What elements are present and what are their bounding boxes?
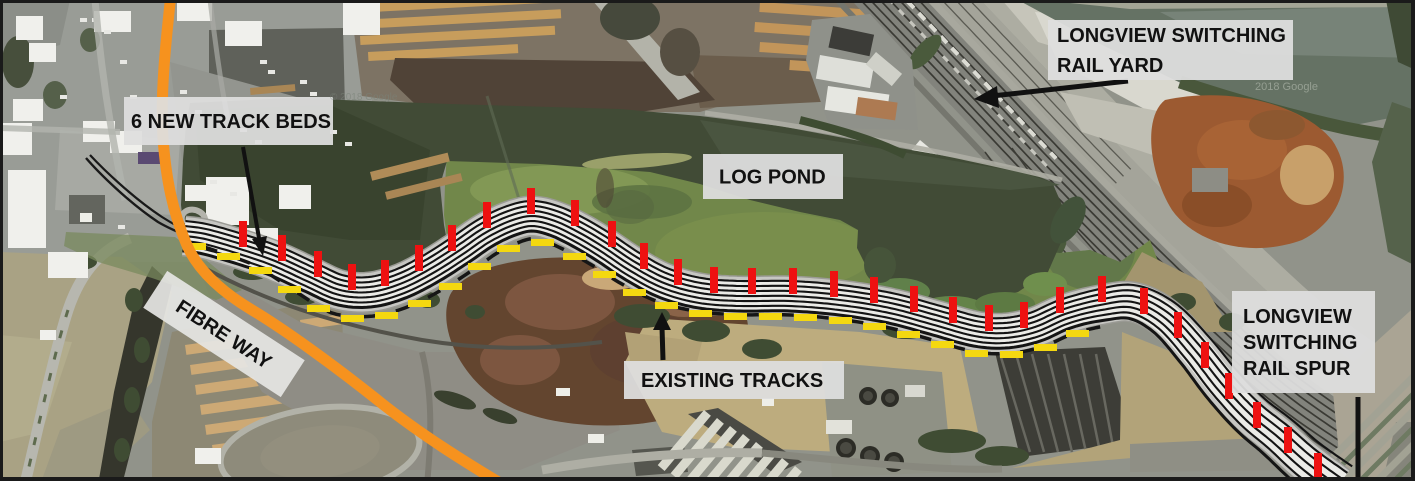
svg-text:EXISTING TRACKS: EXISTING TRACKS [641,370,823,392]
svg-text:6 NEW TRACK BEDS: 6 NEW TRACK BEDS [131,111,331,133]
svg-text:LOG POND: LOG POND [719,167,826,189]
svg-text:RAIL YARD: RAIL YARD [1057,55,1163,77]
svg-text:SWITCHING: SWITCHING [1243,332,1357,354]
svg-text:RAIL SPUR: RAIL SPUR [1243,358,1351,380]
svg-text:© 2018 Google: © 2018 Google [330,92,398,103]
svg-text:LONGVIEW SWITCHING: LONGVIEW SWITCHING [1057,25,1286,47]
svg-text:LONGVIEW: LONGVIEW [1243,306,1352,328]
svg-text:2018 Google: 2018 Google [1255,81,1318,93]
